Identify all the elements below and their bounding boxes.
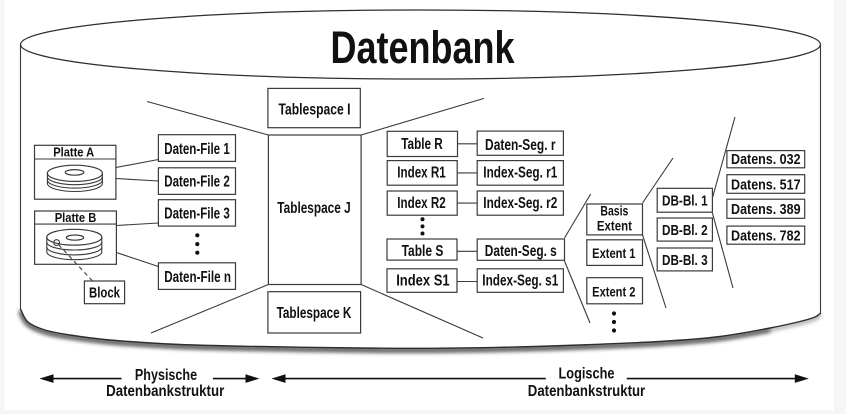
svg-text:Index-Seg. r2: Index-Seg. r2 [483,195,557,212]
svg-text:Daten-File 1: Daten-File 1 [164,141,230,158]
svg-text:Tablespace J: Tablespace J [277,200,350,217]
svg-text:Index-Seg. r1: Index-Seg. r1 [483,165,557,182]
svg-text:Daten-File n: Daten-File n [164,269,231,286]
svg-text:Index R2: Index R2 [397,195,446,212]
svg-text:Datenbankstruktur: Datenbankstruktur [528,383,645,400]
svg-text:Extent 2: Extent 2 [592,285,635,300]
svg-text:Datens. 032: Datens. 032 [731,152,801,168]
svg-text:Index S1: Index S1 [396,272,450,289]
svg-text:Block: Block [89,285,120,302]
svg-text:DB-Bl. 3: DB-Bl. 3 [662,253,708,269]
svg-text:Tablespace K: Tablespace K [277,305,352,322]
svg-text:Index-Seg. s1: Index-Seg. s1 [482,272,558,289]
svg-text:Table S: Table S [402,243,444,260]
svg-text:Datens. 517: Datens. 517 [731,177,801,193]
svg-text:Logische: Logische [559,366,615,383]
svg-text:Daten-Seg. r: Daten-Seg. r [485,137,556,154]
svg-text:DB-Bl. 2: DB-Bl. 2 [662,223,708,239]
svg-text:Extent 1: Extent 1 [592,246,636,261]
svg-text:Table R: Table R [401,136,443,153]
svg-text:Index R1: Index R1 [397,165,446,182]
svg-text:Datens. 389: Datens. 389 [731,202,801,218]
svg-text:Extent: Extent [597,218,632,233]
svg-text:Platte B: Platte B [55,210,97,225]
svg-text:Platte A: Platte A [53,145,95,160]
svg-text:DB-Bl. 1: DB-Bl. 1 [662,194,708,210]
svg-text:Tablespace I: Tablespace I [279,101,351,118]
svg-text:Daten-File 3: Daten-File 3 [164,205,230,222]
svg-text:Datenbank: Datenbank [331,22,516,73]
svg-text:Daten-Seg. s: Daten-Seg. s [485,243,557,260]
svg-text:Basis: Basis [600,204,628,219]
svg-text:Daten-File 2: Daten-File 2 [164,174,230,191]
svg-text:Datenbankstruktur: Datenbankstruktur [106,383,224,400]
svg-text:Physische: Physische [135,367,197,384]
svg-text:Datens. 782: Datens. 782 [731,229,801,245]
